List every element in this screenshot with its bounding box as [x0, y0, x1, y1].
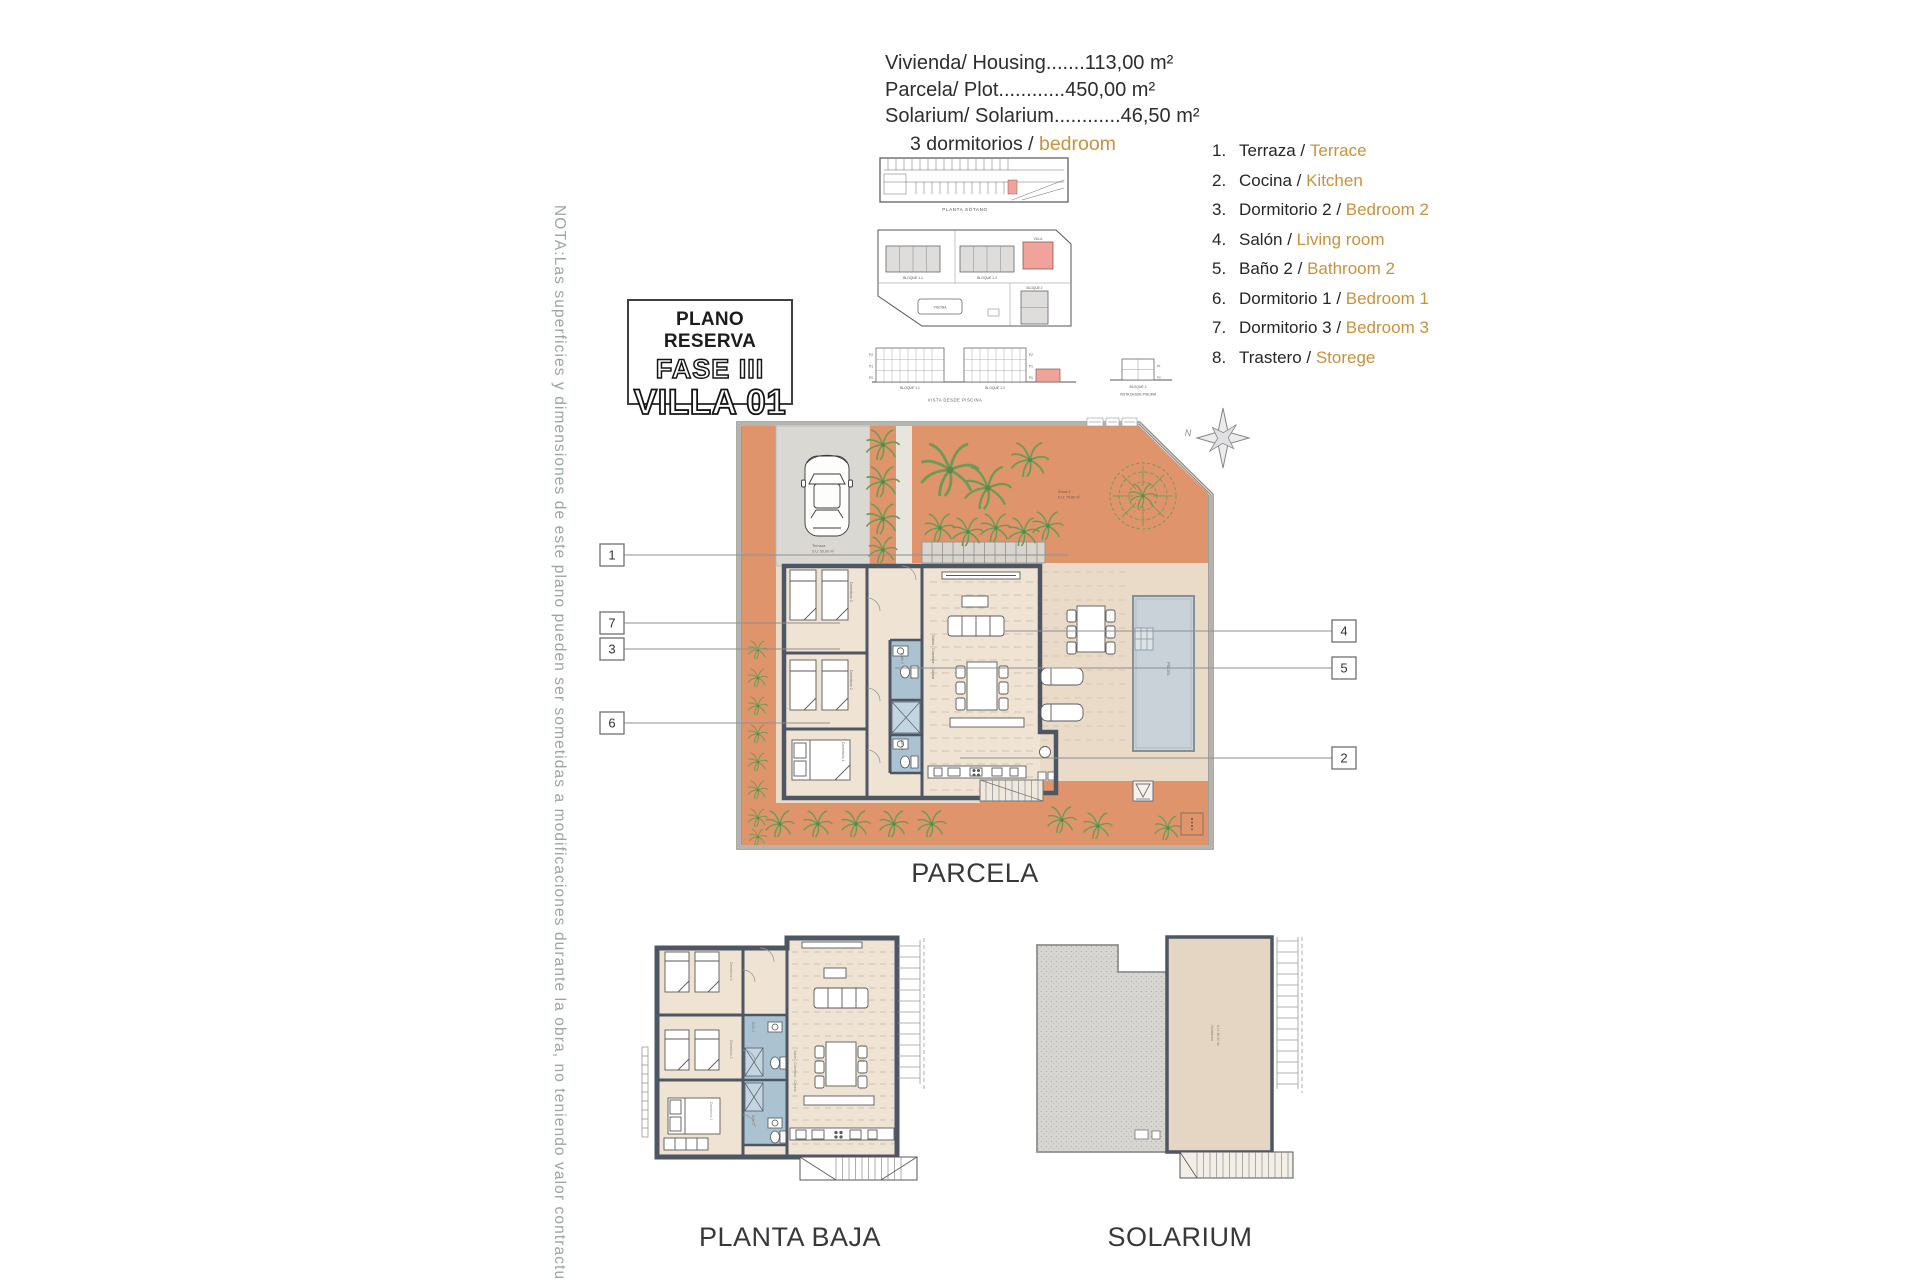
site-diagrams: PLANTA SÓTANO BLOQUE 1.1 BLOQUE 1.2 VILL…: [860, 150, 1200, 430]
siteplan-diagram: BLOQUE 1.1 BLOQUE 1.2 VILLA BLOQUE 2 PIS…: [878, 230, 1071, 326]
bloque12-label: BLOQUE 1.2: [977, 276, 997, 280]
planta-baja-label: PLANTA BAJA: [640, 1222, 940, 1253]
pb-pergola: [898, 938, 924, 1090]
north-letter: N: [1185, 428, 1192, 438]
solarium-plan: Solarium S.U: 46,50 m²: [1035, 925, 1325, 1215]
pool-label: Piscina: [1166, 662, 1171, 676]
villa-label: VILLA: [1034, 237, 1044, 241]
svg-text:BLOQUE 1.1: BLOQUE 1.1: [900, 386, 920, 390]
legend-item-storage: 8.Trastero / Storege: [1212, 348, 1429, 378]
parcela-plan-label: PARCELA: [875, 858, 1075, 889]
planta-baja-plan: Dormitorio 3 Dormitorio 2 Dormitorio 1 B…: [640, 930, 940, 1220]
top-note-boxes: [1087, 418, 1137, 426]
svg-text:1: 1: [608, 548, 615, 563]
svg-text:P1: P1: [1157, 364, 1161, 368]
svg-text:P0: P0: [1029, 376, 1033, 380]
piscina-label: PISCINA: [934, 306, 948, 310]
solarium-label: SOLARIUM: [1035, 1222, 1325, 1253]
pb-side-ladder: [642, 1047, 648, 1137]
svg-text:Terraza: Terraza: [812, 543, 826, 548]
svg-text:Dormitorio 1: Dormitorio 1: [709, 1102, 713, 1121]
svg-text:Baño 1: Baño 1: [751, 1115, 755, 1125]
svg-text:Salón - Comedor - Cocina: Salón - Comedor - Cocina: [793, 1050, 797, 1092]
basement-diagram-label: PLANTA SÓTANO: [942, 206, 987, 212]
roof-area: [1037, 945, 1167, 1152]
svg-text:3: 3: [608, 642, 615, 657]
bloque11-label: BLOQUE 1.1: [903, 276, 923, 280]
car-icon: [802, 455, 853, 536]
svg-text:Baño 2: Baño 2: [900, 653, 904, 664]
elevation-diagram: P2 P1 P0 P2 P1 P0 BLOQUE 1.1 BLOQUE 1.2 …: [869, 348, 1076, 403]
svg-text:Zona 2: Zona 2: [1058, 489, 1071, 494]
legend-item-bedroom2: 3.Dormitorio 2 / Bedroom 2: [1212, 200, 1429, 230]
svg-text:P2: P2: [1029, 353, 1033, 357]
reservation-title-box: PLANO RESERVA FASE III VILLA 01: [627, 299, 793, 405]
svg-text:4: 4: [1340, 624, 1347, 639]
svg-text:P1: P1: [869, 365, 873, 369]
spec-line-solarium: Solarium/ Solarium............46,50 m²: [885, 103, 1200, 130]
legend-item-bedroom1: 6.Dormitorio 1 / Bedroom 1: [1212, 289, 1429, 319]
outdoor-shower: [1133, 781, 1153, 801]
svg-text:P2: P2: [869, 353, 873, 357]
svg-text:5: 5: [1340, 661, 1347, 676]
rear-stairs: [980, 780, 1043, 801]
roof-box: [1152, 1131, 1160, 1139]
svg-text:BLOQUE 1.2: BLOQUE 1.2: [985, 386, 1005, 390]
svg-text:2: 2: [1340, 751, 1347, 766]
north-compass-icon: [1197, 408, 1249, 468]
fase-title: FASE III: [629, 354, 791, 385]
svg-text:Solarium: Solarium: [1210, 1025, 1215, 1041]
legend-item-bedroom3: 7.Dormitorio 3 / Bedroom 3: [1212, 318, 1429, 348]
spec-line-plot: Parcela/ Plot............450,00 m²: [885, 77, 1200, 104]
svg-text:VISTA DESDE PISCINA: VISTA DESDE PISCINA: [1120, 393, 1157, 397]
svg-text:S.U: 46,50 m²: S.U: 46,50 m²: [1216, 1025, 1220, 1047]
side-garden-strip: [742, 426, 777, 845]
parcela-plan: Piscina Terraza S.U: 55,00 m²: [590, 400, 1370, 855]
svg-text:P0: P0: [1157, 376, 1161, 380]
svg-text:Baño 2: Baño 2: [751, 1022, 755, 1032]
svg-text:P0: P0: [869, 376, 873, 380]
roof-box: [1135, 1130, 1148, 1139]
bloque2-elevation-diagram: P1 P0 BLOQUE 2 VISTA DESDE PISCINA: [1110, 359, 1172, 397]
legend-item-terrace: 1.Terraza / Terrace: [1212, 141, 1429, 171]
solarium-pergola: [1277, 937, 1302, 1093]
room-legend: 1.Terraza / Terrace 2.Cocina / Kitchen 3…: [1212, 141, 1429, 377]
surface-specs: Vivienda/ Housing.......113,00 m² Parcel…: [885, 50, 1200, 130]
svg-text:Baño 1: Baño 1: [900, 740, 904, 751]
svg-text:Salón - Comedor - Cocina: Salón - Comedor - Cocina: [931, 635, 935, 680]
svg-text:7: 7: [608, 616, 615, 631]
entry-walkway: [896, 426, 912, 566]
pool: Piscina: [1133, 596, 1194, 751]
bathrooms: [890, 640, 922, 773]
svg-text:Dormitorio 3: Dormitorio 3: [729, 962, 733, 981]
plano-reserva-title: PLANO RESERVA: [629, 309, 791, 353]
svg-text:Dormitorio 3: Dormitorio 3: [849, 582, 853, 602]
legend-item-livingroom: 4.Salón / Living room: [1212, 230, 1429, 260]
legend-item-bathroom2: 5.Baño 2 / Bathroom 2: [1212, 259, 1429, 289]
villa-highlight-siteplan: [1023, 242, 1053, 269]
svg-text:S.U: 70,00 m²: S.U: 70,00 m²: [1058, 496, 1081, 500]
pb-stairs: [800, 1157, 917, 1180]
basement-diagram: PLANTA SÓTANO: [880, 158, 1068, 212]
svg-text:Dormitorio 2: Dormitorio 2: [729, 1040, 733, 1059]
solarium-stairs: [1180, 1152, 1293, 1178]
spec-line-housing: Vivienda/ Housing.......113,00 m²: [885, 50, 1200, 77]
svg-text:6: 6: [608, 716, 615, 731]
svg-text:Dormitorio 1: Dormitorio 1: [841, 742, 845, 762]
svg-text:Dormitorio 2: Dormitorio 2: [849, 670, 853, 690]
pergola-steps: [922, 542, 1045, 563]
legend-item-kitchen: 2.Cocina / Kitchen: [1212, 171, 1429, 201]
plan-sheet: Vivienda/ Housing.......113,00 m² Parcel…: [0, 0, 1920, 1280]
svg-text:P1: P1: [1029, 365, 1033, 369]
disclaimer-note: NOTA:Las superficies y dimensiones de es…: [550, 205, 568, 1135]
svg-text:BLOQUE 2: BLOQUE 2: [1130, 385, 1147, 389]
bloque2-label: BLOQUE 2: [1027, 286, 1043, 290]
villa-highlight-elevation: [1036, 369, 1060, 382]
villa-highlight-basement: [1008, 180, 1017, 194]
svg-text:S.U: 55,00 m²: S.U: 55,00 m²: [812, 550, 835, 554]
